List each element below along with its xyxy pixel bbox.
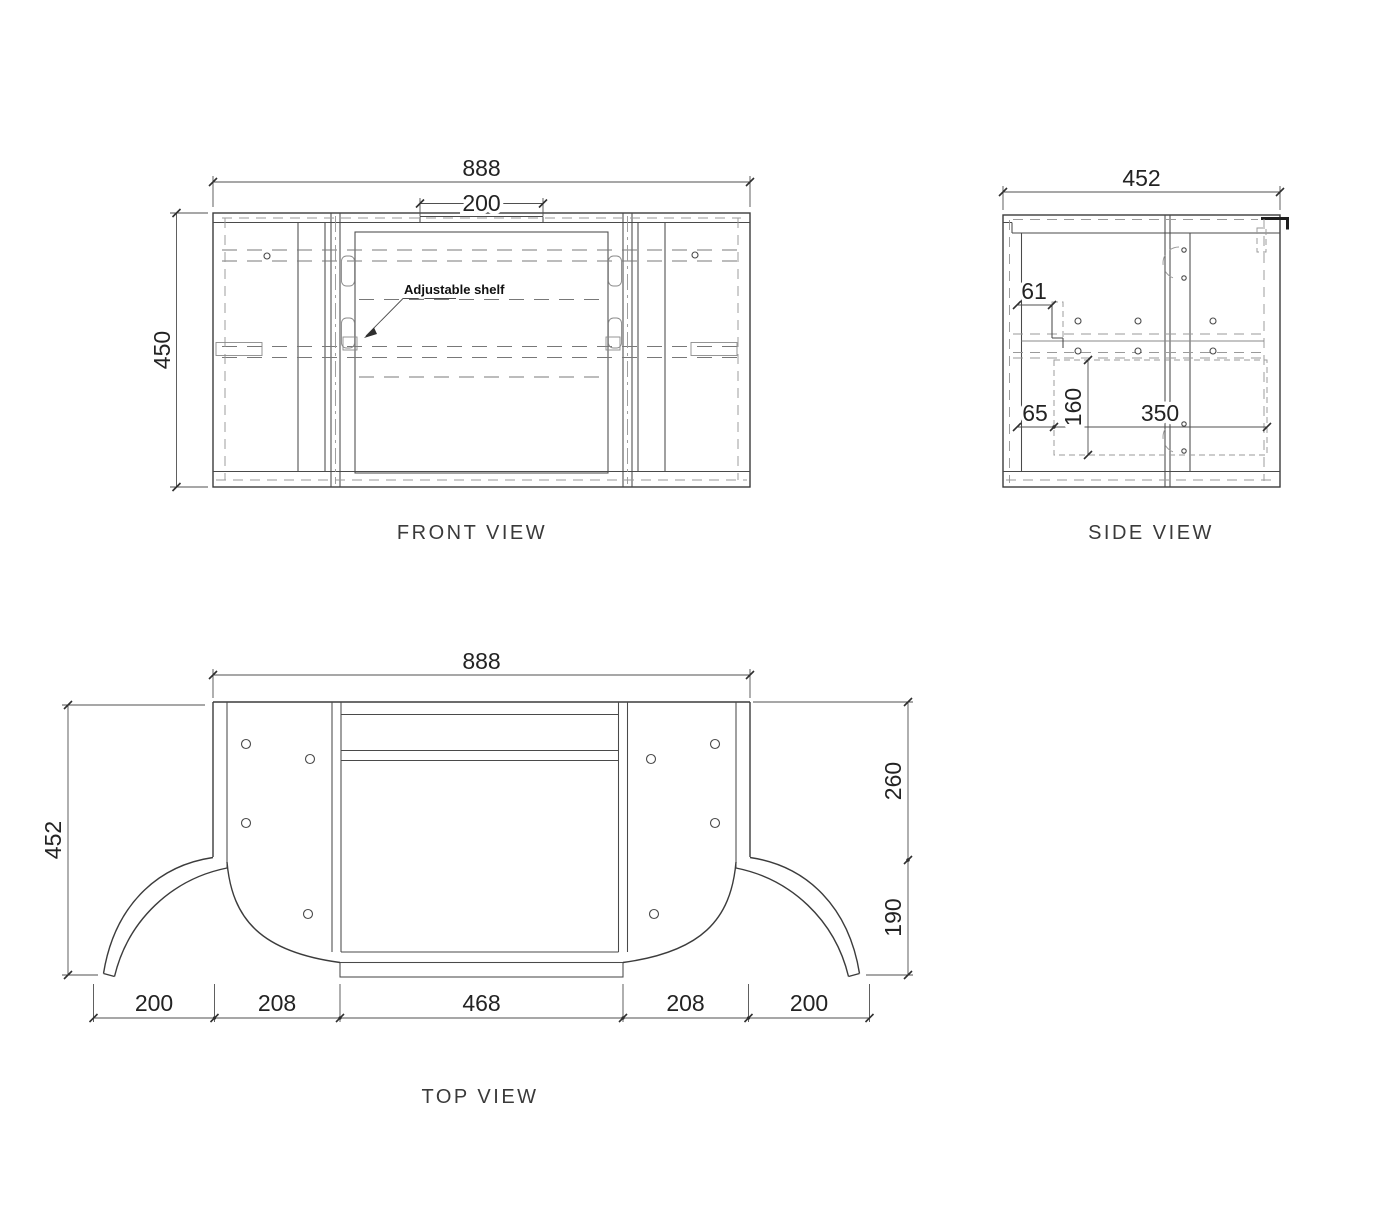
- front-center-opening: [355, 232, 608, 473]
- front-right-hinge-lower: [609, 318, 622, 348]
- top-dim-depth: 452: [40, 821, 66, 859]
- top-dim-dot: [338, 1016, 341, 1019]
- top-dim-lines: [62, 669, 913, 1022]
- top-right-wing: [736, 858, 860, 977]
- side-wall-mount-hook: [1261, 219, 1288, 230]
- top-front-kick-piece: [340, 963, 623, 978]
- side-dim-dot: [1052, 425, 1055, 428]
- side-dim-depth: 452: [1122, 165, 1160, 191]
- top-hole: [711, 740, 720, 749]
- top-hole: [711, 819, 720, 828]
- front-view: Adjustable shelf 888 200 450 FRONT VIEW: [149, 155, 754, 544]
- side-hole: [1135, 348, 1141, 354]
- side-hinge-screw: [1182, 276, 1186, 280]
- front-left-door-hole: [264, 253, 270, 259]
- top-dim-190: 190: [880, 898, 906, 936]
- top-hole: [647, 755, 656, 764]
- top-dim-seg-2: 208: [258, 990, 296, 1016]
- front-dim-height: 450: [149, 331, 175, 369]
- side-bracket-step: [1052, 305, 1063, 348]
- side-bracket-dashed: [1052, 302, 1063, 338]
- side-hook-bracket-detail: [1257, 228, 1266, 252]
- top-dim-seg-4: 208: [666, 990, 704, 1016]
- top-hole: [242, 740, 251, 749]
- top-dim-width: 888: [462, 648, 500, 674]
- front-inset-dashed-lines: [216, 218, 747, 480]
- side-hole: [1075, 348, 1081, 354]
- top-dim-seg-3: 468: [462, 990, 500, 1016]
- top-dim-dot: [213, 1016, 216, 1019]
- top-hole: [304, 910, 313, 919]
- top-dim-seg-5: 200: [790, 990, 828, 1016]
- front-dim-width: 888: [462, 155, 500, 181]
- side-hole: [1135, 318, 1141, 324]
- front-outer-body: [213, 213, 750, 487]
- adjustable-shelf-note: Adjustable shelf: [404, 282, 505, 297]
- front-right-shelf-support: [691, 343, 737, 356]
- top-dim-260: 260: [880, 762, 906, 800]
- front-left-hinge-lower: [342, 318, 355, 348]
- side-hole: [1210, 348, 1216, 354]
- top-dim-dot: [747, 1016, 750, 1019]
- top-body-outline: [213, 702, 750, 857]
- cabinet-technical-drawing: Adjustable shelf 888 200 450 FRONT VIEW: [0, 0, 1400, 1217]
- top-internal-structure: [227, 702, 736, 963]
- front-dim-notch: 200: [462, 190, 500, 216]
- side-view-label: SIDE VIEW: [1088, 522, 1214, 544]
- top-dim-ticks: [64, 671, 912, 1022]
- top-view-label: TOP VIEW: [421, 1086, 538, 1108]
- shelf-leader-arrowhead: [364, 328, 377, 339]
- front-door-centerlines: [336, 216, 628, 484]
- top-left-wing: [104, 858, 228, 977]
- side-hinge-screw: [1182, 248, 1186, 252]
- side-dim-61: 61: [1021, 278, 1047, 304]
- drawing-sheet: Adjustable shelf 888 200 450 FRONT VIEW: [0, 0, 1400, 1217]
- side-dim-160: 160: [1060, 388, 1086, 426]
- front-view-label: FRONT VIEW: [397, 522, 547, 544]
- front-dim-ticks: [173, 178, 755, 491]
- side-dim-65: 65: [1022, 400, 1048, 426]
- top-hole: [242, 819, 251, 828]
- front-rails-and-notch: [213, 217, 750, 472]
- front-shelf-dashed-lines: [222, 250, 741, 377]
- side-dim-350: 350: [1141, 400, 1179, 426]
- side-hinge-screw: [1182, 449, 1186, 453]
- top-dim-dot: [621, 1016, 624, 1019]
- top-dim-dot: [906, 858, 910, 862]
- side-hole: [1210, 318, 1216, 324]
- side-hinge-screw: [1182, 422, 1186, 426]
- top-dim-seg-1: 200: [135, 990, 173, 1016]
- shelf-leader-line: [366, 299, 456, 337]
- side-hole: [1075, 318, 1081, 324]
- top-hole: [650, 910, 659, 919]
- front-left-shelf-support: [216, 343, 262, 356]
- top-hole: [306, 755, 315, 764]
- front-right-door-hole: [692, 252, 698, 258]
- top-view: 888 452 260 190 200 208 468 208 200 TOP …: [40, 648, 913, 1108]
- side-view: 452 61 65 350 160 SIDE VIEW: [999, 165, 1288, 544]
